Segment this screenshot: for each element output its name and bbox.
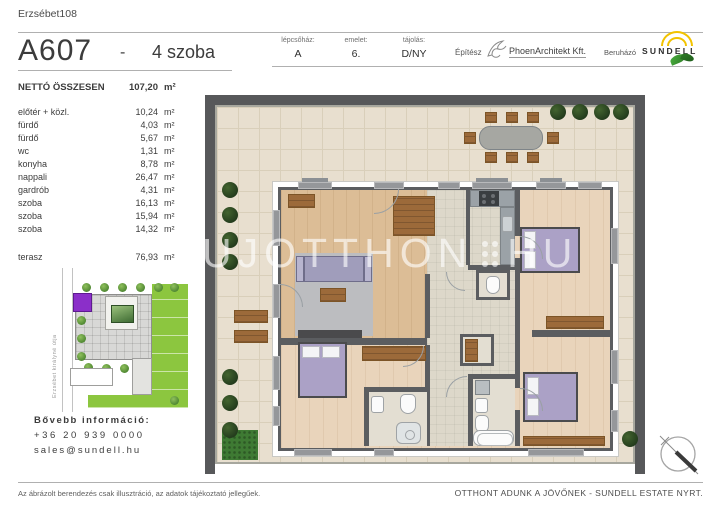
- terrace-unit: m²: [158, 252, 178, 262]
- area-row-name: konyha: [18, 159, 114, 169]
- contact-phone: +36 20 939 0000: [34, 428, 150, 443]
- sundell-logo: SUNDELL: [642, 31, 706, 65]
- other-building: [70, 368, 113, 386]
- interior-wall: [515, 410, 520, 446]
- area-row-name: gardrób: [18, 185, 114, 195]
- toilet: [486, 276, 500, 294]
- window: [298, 182, 332, 189]
- area-total-unit: m²: [158, 82, 178, 93]
- window: [273, 356, 280, 390]
- coffee-table: [320, 288, 346, 302]
- site-minimap: Erzsébet királyné útja: [58, 268, 190, 412]
- area-row-name: szoba: [18, 198, 114, 208]
- area-rows: előtér + közl.10,24m²fürdő4,03m²fürdő5,6…: [18, 105, 178, 235]
- stove: [479, 191, 499, 206]
- area-row-unit: m²: [158, 133, 178, 143]
- architect-bird-icon: [486, 38, 508, 67]
- architect-label: Építész: [455, 48, 482, 57]
- shower: [396, 422, 421, 444]
- window: [611, 350, 618, 384]
- area-row-value: 1,31: [114, 146, 158, 156]
- closet-shelf: [465, 339, 478, 362]
- outdoor-chair: [464, 132, 476, 144]
- area-row-unit: m²: [158, 107, 178, 117]
- area-row: fürdő4,03m²: [18, 118, 178, 131]
- window: [273, 406, 280, 426]
- header-field: emelet:6.: [330, 37, 382, 60]
- kitchen-sink: [502, 216, 513, 232]
- window: [472, 182, 512, 189]
- tv-stand: [298, 330, 362, 338]
- footer-divider: [18, 482, 703, 483]
- window: [273, 210, 280, 246]
- courtyard: [105, 296, 138, 330]
- bedroom-bench: [546, 316, 604, 329]
- plant-icon: [222, 207, 238, 223]
- header-fields: lépcsőház:Aemelet:6.tájolás:D/NY: [272, 37, 440, 60]
- area-row-name: fürdő: [18, 133, 114, 143]
- area-total-value: 107,20: [114, 82, 158, 93]
- highlighted-unit: [73, 293, 92, 312]
- area-row-unit: m²: [158, 146, 178, 156]
- window: [578, 182, 602, 189]
- window: [611, 410, 618, 432]
- area-row-name: fürdő: [18, 120, 114, 130]
- window-sill: [540, 178, 562, 182]
- sofa-armrest: [364, 256, 372, 282]
- outdoor-chair: [506, 112, 518, 123]
- contact-heading: Bővebb információ:: [34, 413, 150, 428]
- door: [273, 284, 280, 318]
- title-underline: [18, 70, 232, 71]
- interior-wall: [425, 274, 430, 338]
- architect-name: PhoenArchitekt Kft.: [509, 46, 586, 58]
- tree-icon: [77, 352, 86, 361]
- header-field-value: 6.: [330, 48, 382, 60]
- header-field-label: emelet:: [330, 37, 382, 44]
- toilet: [400, 394, 416, 414]
- entry-wardrobe: [393, 196, 435, 236]
- shelf: [288, 194, 315, 208]
- title-separator: -: [120, 44, 125, 62]
- header-divider-top: [18, 32, 703, 33]
- sofa-armrest: [296, 256, 304, 282]
- footer-slogan: OTTHONT ADUNK A JÖVŐNEK - SUNDELL ESTATE…: [0, 488, 703, 498]
- tree-icon: [170, 283, 179, 292]
- tree-icon: [120, 364, 129, 373]
- area-row: előtér + közl.10,24m²: [18, 105, 178, 118]
- tree-icon: [136, 283, 145, 292]
- door: [374, 182, 404, 189]
- area-row-unit: m²: [158, 185, 178, 195]
- road-line: [72, 268, 73, 412]
- area-row-value: 16,13: [114, 198, 158, 208]
- header-field-label: tájolás:: [388, 37, 440, 44]
- contact-block: Bővebb információ: +36 20 939 0000 sales…: [34, 413, 150, 458]
- plant-icon: [572, 104, 588, 120]
- unit-id: A607: [18, 34, 92, 68]
- bathtub: [473, 430, 514, 446]
- window: [528, 449, 584, 456]
- area-row-value: 10,24: [114, 107, 158, 117]
- area-row-unit: m²: [158, 172, 178, 182]
- street-name: Erzsébet királyné útja: [52, 288, 58, 398]
- area-row-value: 26,47: [114, 172, 158, 182]
- header-field-value: A: [272, 48, 324, 60]
- road-line: [62, 268, 63, 412]
- area-row-unit: m²: [158, 120, 178, 130]
- green-area: [88, 395, 158, 408]
- area-row-value: 15,94: [114, 211, 158, 221]
- plant-icon: [222, 369, 238, 385]
- area-row: konyha8,78m²: [18, 157, 178, 170]
- area-row: nappali26,47m²: [18, 170, 178, 183]
- washing-machine: [475, 380, 490, 395]
- area-row-value: 4,31: [114, 185, 158, 195]
- interior-wall: [532, 330, 611, 337]
- plant-icon: [222, 395, 238, 411]
- plant-icon: [222, 254, 238, 270]
- window: [536, 182, 566, 189]
- plant-icon: [622, 431, 638, 447]
- area-row-value: 14,32: [114, 224, 158, 234]
- compass-icon: [648, 424, 708, 489]
- green-area: [152, 284, 188, 408]
- area-row: gardrób4,31m²: [18, 183, 178, 196]
- tree-icon: [77, 334, 86, 343]
- floor-plan: [198, 88, 650, 486]
- area-total-label: NETTÓ ÖSSZESEN: [18, 82, 114, 93]
- header-field: lépcsőház:A: [272, 37, 324, 60]
- wardrobe: [523, 436, 605, 446]
- building-render-thumb: [111, 305, 134, 323]
- area-row: szoba14,32m²: [18, 222, 178, 235]
- area-row-unit: m²: [158, 211, 178, 221]
- plant-icon: [222, 232, 238, 248]
- developer-label: Beruházó: [604, 48, 636, 57]
- window: [374, 449, 394, 456]
- plant-icon: [613, 104, 629, 120]
- header-field-value: D/NY: [388, 48, 440, 60]
- window-sill: [476, 178, 508, 182]
- area-row-unit: m²: [158, 198, 178, 208]
- area-row: wc1,31m²: [18, 144, 178, 157]
- tree-icon: [77, 316, 86, 325]
- terrace-value: 76,93: [114, 252, 158, 262]
- header-field: tájolás:D/NY: [388, 37, 440, 60]
- interior-wall: [515, 258, 520, 388]
- sink: [371, 396, 384, 413]
- area-total-row: NETTÓ ÖSSZESEN 107,20 m²: [18, 82, 178, 93]
- project-name: Erzsébet108: [18, 8, 77, 20]
- plant-icon: [594, 104, 610, 120]
- area-row-unit: m²: [158, 159, 178, 169]
- terrace-label: terasz: [18, 252, 114, 262]
- outdoor-chair: [485, 112, 497, 123]
- area-row-value: 8,78: [114, 159, 158, 169]
- plant-icon: [222, 422, 238, 438]
- area-row-name: nappali: [18, 172, 114, 182]
- outdoor-chair: [547, 132, 559, 144]
- area-row-name: szoba: [18, 211, 114, 221]
- outdoor-chair: [506, 152, 518, 163]
- window: [294, 449, 332, 456]
- window-sill: [302, 178, 328, 182]
- outdoor-chair: [527, 112, 539, 123]
- area-row-value: 5,67: [114, 133, 158, 143]
- lounge-chair: [234, 330, 268, 343]
- lounge-chair: [234, 310, 268, 323]
- unit-type: 4 szoba: [152, 42, 215, 63]
- outdoor-dining-table: [479, 126, 543, 150]
- area-row: szoba15,94m²: [18, 209, 178, 222]
- outdoor-chair: [485, 152, 497, 163]
- outdoor-chair: [527, 152, 539, 163]
- area-row-unit: m²: [158, 224, 178, 234]
- tree-icon: [100, 283, 109, 292]
- plant-icon: [550, 104, 566, 120]
- terrace-row: terasz 76,93 m²: [18, 250, 178, 263]
- datasheet-page: { "header": { "project": "Erzsébet108", …: [0, 0, 720, 510]
- tree-icon: [154, 283, 163, 292]
- tree-icon: [82, 283, 91, 292]
- sink: [475, 398, 488, 413]
- header-field-label: lépcsőház:: [272, 37, 324, 44]
- area-row-name: szoba: [18, 224, 114, 234]
- tree-icon: [170, 396, 179, 405]
- area-row: szoba16,13m²: [18, 196, 178, 209]
- area-row-name: előtér + közl.: [18, 107, 114, 117]
- plant-icon: [222, 182, 238, 198]
- bed: [298, 342, 347, 398]
- window: [438, 182, 460, 189]
- area-row-value: 4,03: [114, 120, 158, 130]
- contact-email: sales@sundell.hu: [34, 443, 150, 458]
- area-row: fürdő5,67m²: [18, 131, 178, 144]
- door: [611, 228, 618, 264]
- area-row-name: wc: [18, 146, 114, 156]
- tree-icon: [118, 283, 127, 292]
- other-building: [132, 358, 152, 395]
- sofa: [304, 256, 364, 282]
